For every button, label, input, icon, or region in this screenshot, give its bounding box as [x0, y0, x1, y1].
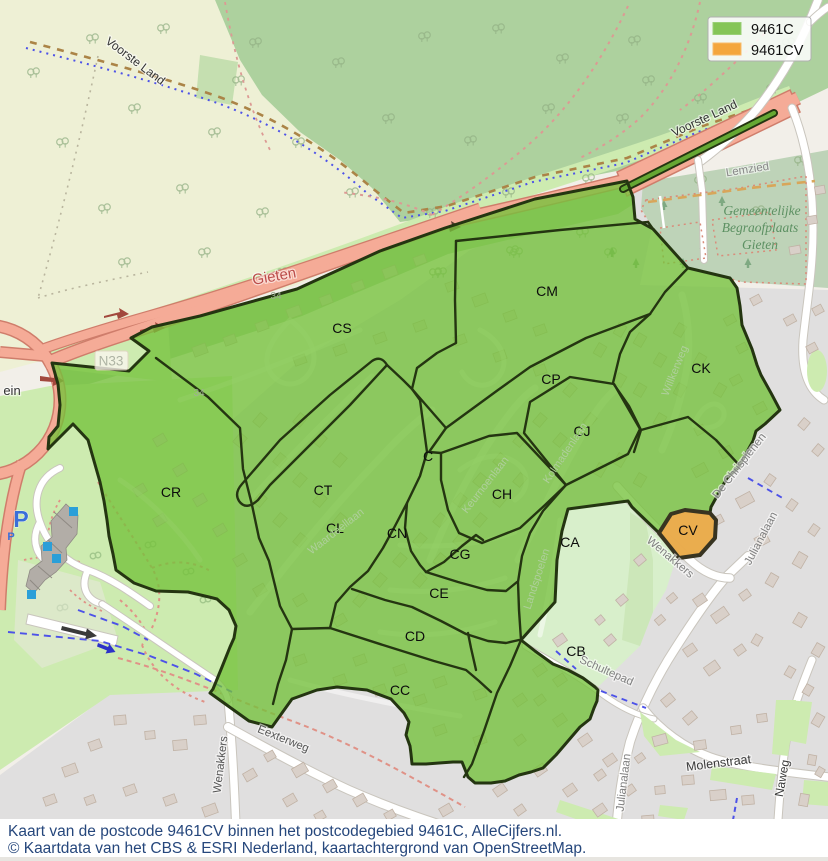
svg-text:Kaart van de postcode 9461CV b: Kaart van de postcode 9461CV binnen het … — [8, 823, 562, 840]
svg-text:34: 34 — [270, 291, 282, 302]
svg-text:CE: CE — [429, 585, 448, 601]
svg-text:C: C — [423, 448, 433, 464]
svg-text:34: 34 — [193, 388, 205, 399]
svg-text:CM: CM — [536, 283, 558, 299]
svg-text:CP: CP — [541, 371, 560, 387]
svg-text:P: P — [7, 531, 14, 543]
svg-text:P: P — [13, 506, 28, 532]
svg-text:CT: CT — [314, 482, 333, 498]
svg-text:CG: CG — [450, 546, 471, 562]
svg-text:ein: ein — [3, 383, 20, 398]
svg-text:CS: CS — [332, 320, 351, 336]
svg-text:CN: CN — [387, 525, 407, 541]
svg-text:CC: CC — [390, 682, 410, 698]
svg-text:Begraofplaats: Begraofplaats — [722, 220, 799, 235]
svg-text:Gieten: Gieten — [742, 237, 778, 252]
svg-text:9461C: 9461C — [751, 22, 794, 38]
svg-text:CA: CA — [560, 534, 580, 550]
svg-text:CK: CK — [691, 360, 711, 376]
svg-text:N33: N33 — [99, 354, 124, 369]
svg-text:CD: CD — [405, 628, 425, 644]
svg-text:CR: CR — [161, 484, 181, 500]
svg-text:Gemeentelijke: Gemeentelijke — [723, 203, 800, 218]
svg-text:9461CV: 9461CV — [751, 43, 804, 59]
svg-text:CV: CV — [678, 522, 698, 538]
svg-text:CH: CH — [492, 486, 512, 502]
svg-text:© Kaartdata van het CBS & ESRI: © Kaartdata van het CBS & ESRI Nederland… — [8, 840, 586, 857]
